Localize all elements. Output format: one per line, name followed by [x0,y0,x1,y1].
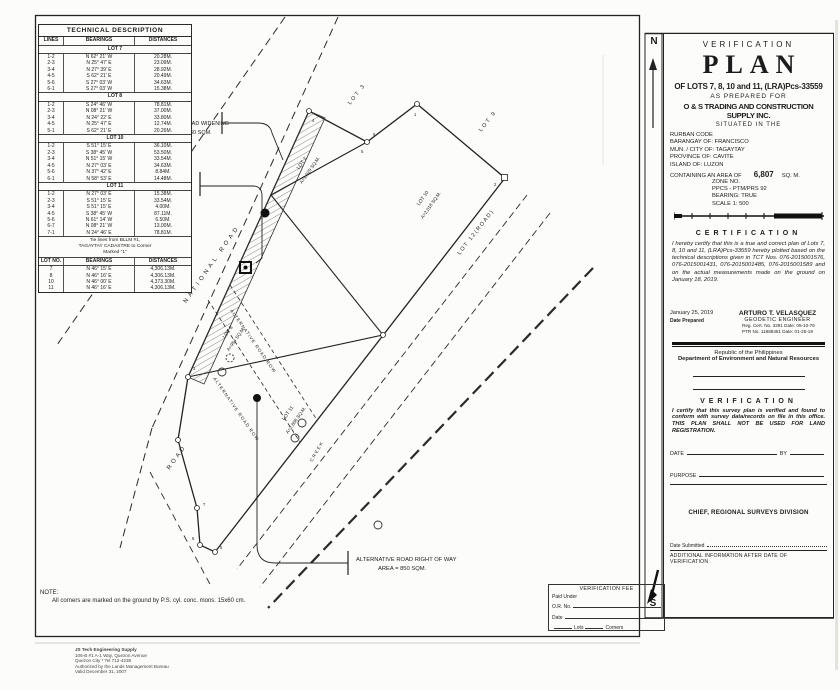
denr-verification-heading: VERIFICATION [670,398,827,405]
fee-date-line: Date [552,613,661,621]
lot-name: LOT 8 [39,93,191,102]
cell: N 46° 16' E [64,285,135,291]
cell: 6-1 [39,86,64,93]
date-label: DATE [670,451,684,457]
zone-block: ZONE NO.PPCS - PTM/PRS 92BEARING: TRUESC… [670,179,827,208]
date-submitted-row: Date Submitted [670,540,827,549]
south-letter: S [644,598,662,609]
signature-row: January 25, 2019 Date Prepared ARTURO T.… [670,310,827,335]
scan-edge-shadow [835,20,838,670]
note-body: All corners are marked on the ground by … [52,598,246,604]
alt-right-label-1: ALTERNATIVE ROAD RIGHT OF WAY [356,557,457,563]
tie-rows-body: 7N 46° 15' E4,306.13M.8N 46° 16' E4,306.… [39,266,191,292]
separator-bar [672,342,825,345]
corner-number: 5 [220,545,223,550]
cell: 20.26M. [135,128,192,135]
technical-description-table: TECHNICAL DESCRIPTION LINES BEARINGS DIS… [38,24,192,293]
cell: 4,306.13M. [135,266,192,273]
cell: N 58° 53' E [64,176,135,183]
row: 7N 46° 15' E4,306.13M. [39,266,191,273]
cell: S 51° 15' E [64,143,135,150]
engineer-block: ARTURO T. VELASQUEZ GEODETIC ENGINEER Re… [728,310,827,335]
north-arrow-icon [649,58,657,128]
or-no-label: O.R. No. [552,604,571,610]
col-distances: DISTANCES [135,37,192,45]
cell: N 46° 15' E [64,266,135,273]
location-fields: RURBAN CODEBARANGAY OF: FRANCISCOMUN. / … [670,132,827,169]
text-line: ZONE NO. [712,179,827,186]
cell: 1-2 [39,101,64,108]
fee-box-title: VERIFICATION FEE [552,586,661,592]
text-line: Valid December 31, 2007 [75,669,169,675]
horizontal-rule [670,484,827,485]
corner-number: 5 [361,149,364,154]
date-submitted-label: Date Submitted [670,543,704,549]
of-lots-line: OF LOTS 7, 8, 10 and 11, (LRA)Pcs-33559 [670,82,827,91]
row: 11N 46° 16' E4,306.13M. [39,285,191,291]
col-bearings: BEARINGS [64,37,135,45]
company-name: O & S TRADING AND CONSTRUCTION SUPPLY IN… [670,102,827,120]
blank-line-2 [693,381,805,390]
lot-name: LOT 11 [39,182,191,191]
col-bearings: BEARINGS [64,257,135,266]
date-prepared-block: January 25, 2019 Date Prepared [670,310,728,335]
tech-row: 6-1S 27° 03' W15.38M. [39,86,191,93]
text-line: PPCS - PTM/PRS 92 [712,186,827,193]
purpose-blank [699,469,824,477]
scanned-survey-plan-sheet: 1 2 3 4 5 6 7 6 5 NATIONAL ROAD ROAD LOT… [0,0,840,690]
purpose-row: PURPOSE [670,469,827,479]
verification-heading: VERIFICATION [670,40,827,49]
cell: 7 [39,266,64,273]
area-value: 6,807 [754,170,774,179]
as-prepared-line: AS PREPARED FOR [670,93,827,100]
tie-table-header-row: LOT NO. BEARINGS DISTANCES [39,257,191,266]
date-blank [687,447,777,455]
lot-name: LOT 10 [39,134,191,143]
cell: 36.10M. [135,143,192,150]
text-line: PROVINCE OF: CAVITE [670,154,827,161]
horizontal-rule-2 [670,550,827,551]
text-line: SCALE 1: 500 [712,201,827,208]
paid-under-label: Paid Under [552,594,577,600]
title-panel: VERIFICATION PLAN OF LOTS 7, 8, 10 and 1… [663,33,834,618]
area-unit: SQ. M. [782,173,800,179]
purpose-label: PURPOSE [670,473,696,479]
lot-header-row: LOT 11 [39,182,191,191]
cell: 5-1 [39,128,64,135]
cell: S 62° 21' E [64,128,135,135]
area-line: CONTAINING AN AREA OF 6,807 SQ. M. [670,170,827,179]
corner-number: 1 [414,112,417,117]
cell: 1-2 [39,191,64,198]
printer-credits: JS Tech Engineering Supply106-B #1 A-1 W… [75,647,169,675]
tech-row: 5-1S 62° 21' E20.26M. [39,128,191,135]
cell: N 62° 21' W [64,54,135,61]
note-title: NOTE: [40,590,59,596]
road-label: ROAD [166,444,188,471]
text-line: BEARING: TRUE [712,193,827,200]
corners-label: Corners [605,625,623,631]
tech-row: 6-1N 58° 53' E14.48M. [39,176,191,183]
corners-blank [585,623,603,629]
lot-header-row: LOT 7 [39,45,191,54]
cell: 1-2 [39,143,64,150]
date-by-row: DATE BY [670,447,827,457]
alt-row-label-2: ALTERNATIVE ROAD ROW [212,376,260,442]
lot9-label: LOT 9 [478,110,498,134]
ptr-line: PTR No. 11888451 Date: 01-25-19 [742,329,827,335]
date-prepared-value: January 25, 2019 [670,310,728,316]
cell: 15.38M. [135,86,192,93]
tech-row: 1-2S 24° 46' W78.81M. [39,101,191,108]
tech-row: 1-2N 27° 03' E15.38M. [39,191,191,198]
tech-lines-table: LINES BEARINGS DISTANCES LOT 71-2N 62° 2… [39,37,191,236]
text-line: ISLAND OF: LUZON [670,162,827,169]
tie-lines-table: LOT NO. BEARINGS DISTANCES 7N 46° 15' E4… [39,257,191,292]
tech-table-header-row: LINES BEARINGS DISTANCES [39,37,191,45]
north-letter: N [645,36,663,47]
by-label: BY [780,451,787,457]
tech-lots-body: LOT 71-2N 62° 21' W20.28M.2-3N 25° 47' E… [39,45,191,236]
cell: S 24° 46' W [64,101,135,108]
corner-number: 2 [494,182,497,187]
text-line: Marked "1" [39,250,191,256]
lot3-label: LOT 3 [347,83,367,107]
tech-table-title: TECHNICAL DESCRIPTION [39,25,191,37]
row-reference-dot [253,394,261,402]
col-lines: LINES [39,37,64,45]
cell: 20.28M. [135,54,192,61]
department-line: Department of Environment and Natural Re… [670,356,827,362]
cell: 14.48M. [135,176,192,183]
text-line: RURBAN CODE [670,132,827,139]
by-blank [790,447,824,455]
fee-date-label: Date [552,615,563,621]
certification-heading: CERTIFICATION [670,230,827,237]
lots-blank [554,623,572,629]
lot-header-row: LOT 10 [39,134,191,143]
certification-body: I hereby certify that this is a true and… [672,241,825,284]
lot-header-row: LOT 8 [39,93,191,102]
cell: 1-2 [39,54,64,61]
col-distances: DISTANCES [135,257,192,266]
col-lot-no: LOT NO. [39,257,64,266]
date-submitted-blank [707,540,827,547]
fee-date-blank [565,613,661,619]
plan-title: PLAN [670,50,827,80]
cell: 4,306.13M. [135,285,192,291]
corner-number: 7 [203,502,206,507]
scale-bar [674,211,824,221]
tech-row: 1-2S 51° 15' E36.10M. [39,143,191,150]
text-line: MUN. / CITY OF: TAGAYTAY [670,147,827,154]
cell: 78.81M. [135,101,192,108]
separator-bar-thin [672,346,825,347]
alt-right-label-2: AREA = 850 SQM. [378,566,427,572]
cell: 11 [39,285,64,291]
text-line: BARANGAY OF: FRANCISCO [670,139,827,146]
corner-number: 6 [192,536,195,541]
denr-verification-body: I certify that this survey plan is verif… [672,408,825,435]
tie-note: Tie lines from BLLM #1,TAGAYTAY CADASTRE… [39,236,191,256]
lots-label: Lots [574,625,583,631]
additional-info-line: ADDITIONAL INFORMATION AFTER DATE OF VER… [670,553,827,565]
reg-cert-line: Reg. Cert. No. 3291 Date: 05-10-76 [742,323,827,329]
cell: S 27° 03' W [64,86,135,93]
cell: N 27° 03' E [64,191,135,198]
date-prepared-label: Date Prepared [670,318,728,324]
lots-corners-line: Lots Corners [552,623,661,631]
lot-name: LOT 7 [39,45,191,54]
situated-line: SITUATED IN THE [670,122,827,128]
tech-row: 1-2N 62° 21' W20.28M. [39,54,191,61]
cell: 15.38M. [135,191,192,198]
chief-line: CHIEF, REGIONAL SURVEYS DIVISION [670,509,827,516]
blank-line-1 [693,368,805,377]
lot12-road-lines [237,195,593,608]
cell: 6-1 [39,176,64,183]
engineer-name: ARTURO T. VELASQUEZ [728,310,827,317]
